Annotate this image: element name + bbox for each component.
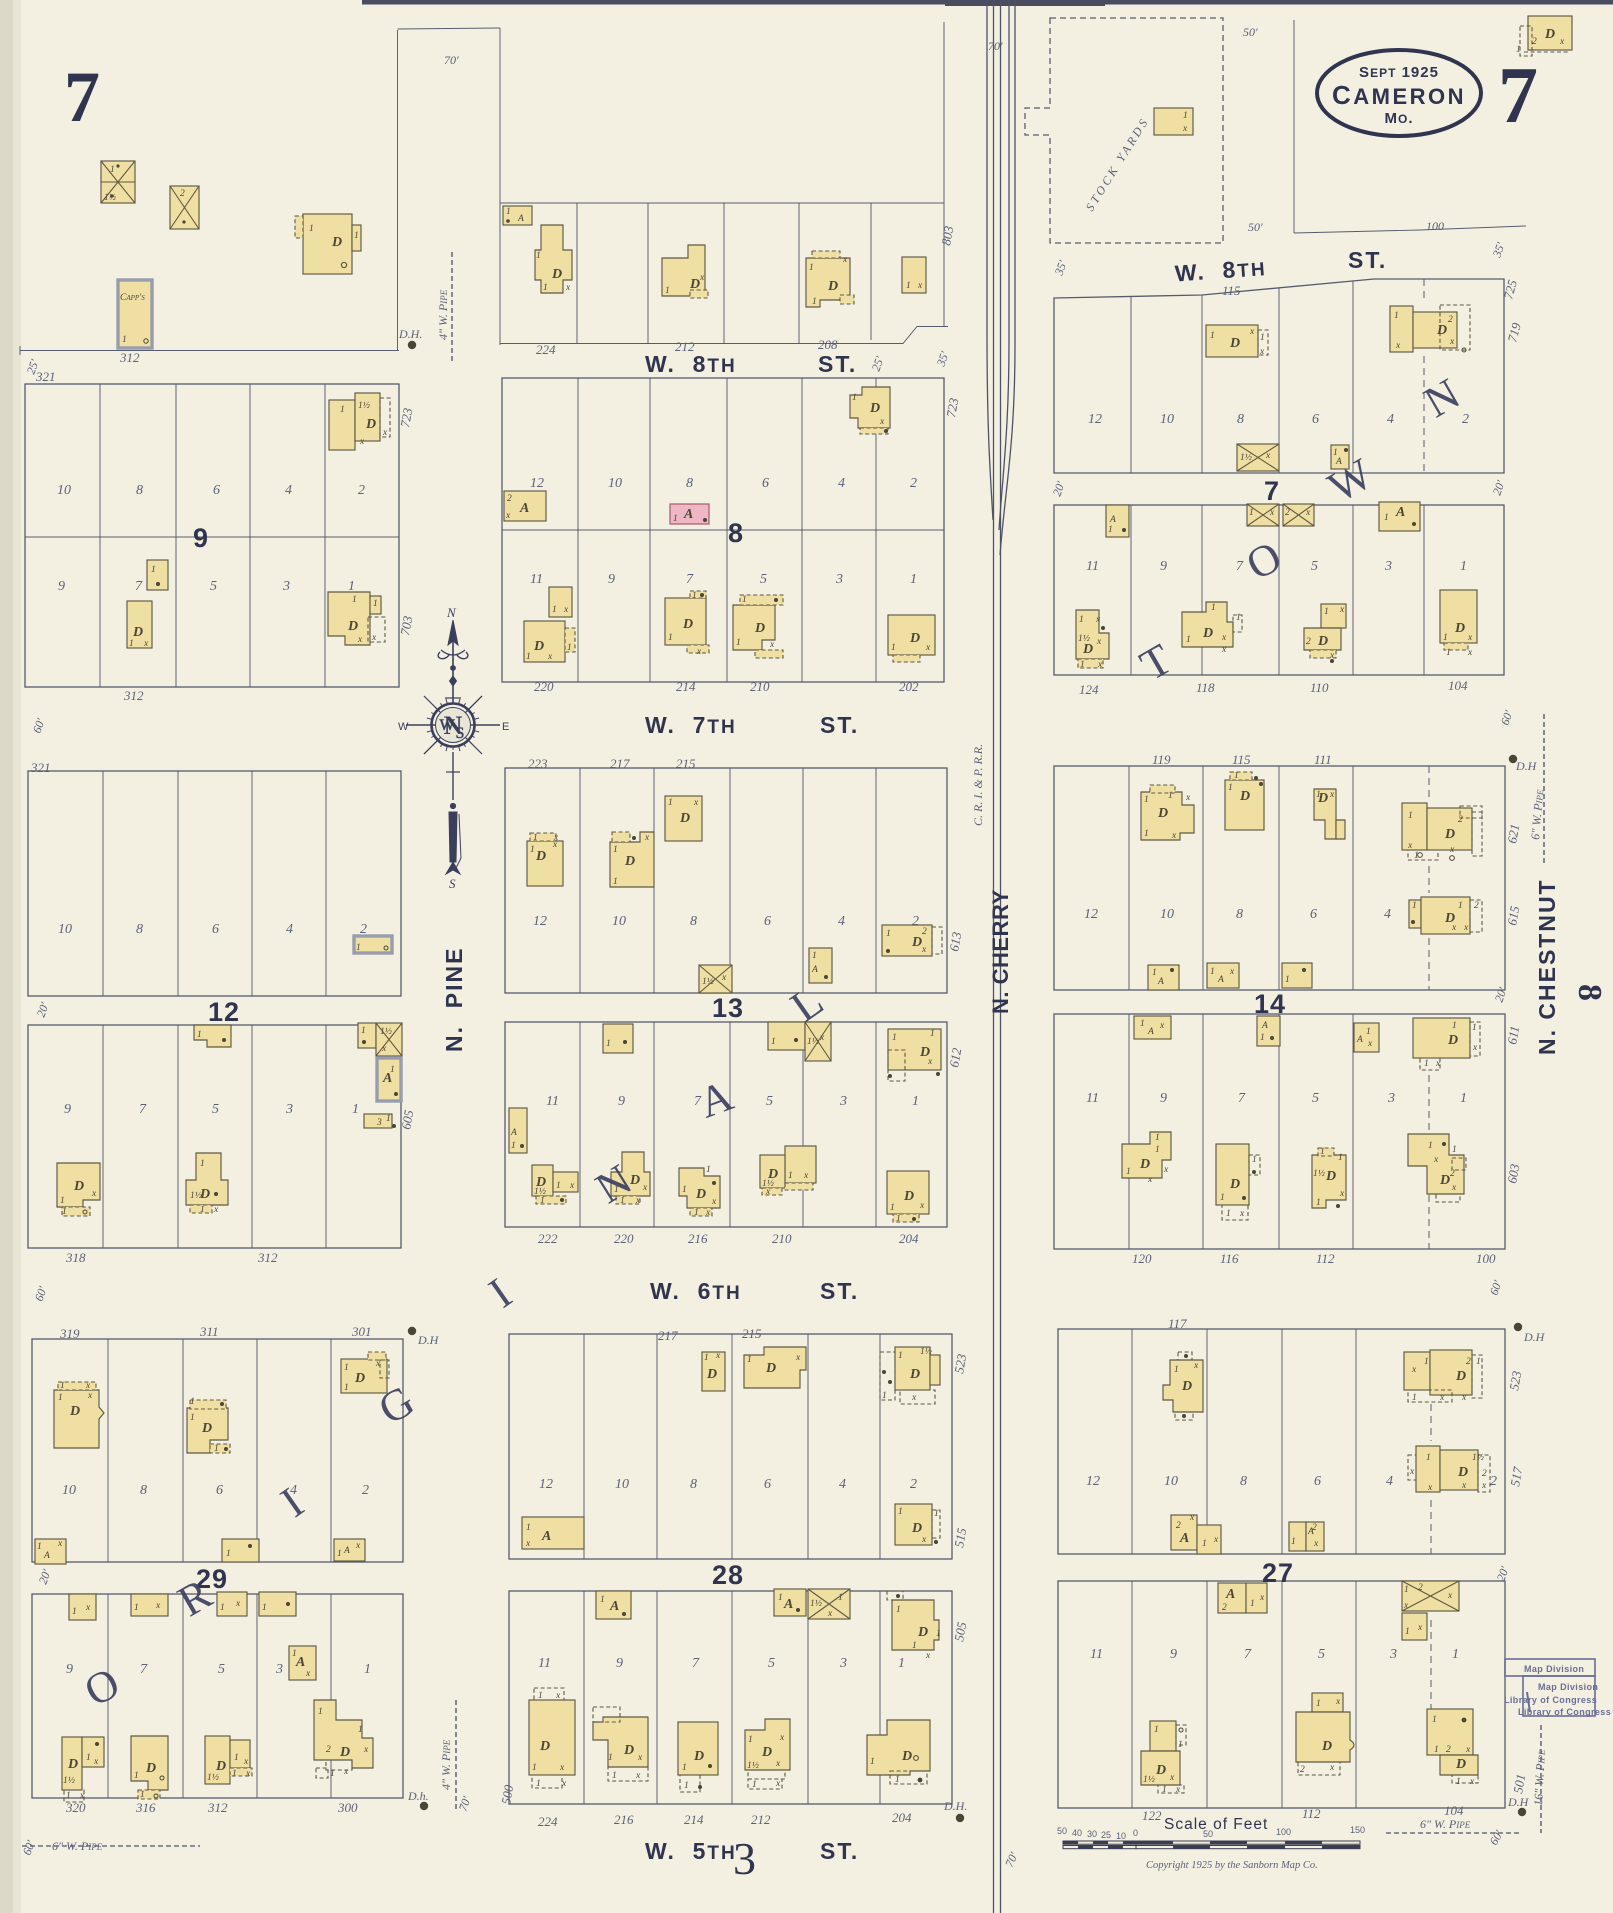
svg-text:1: 1 [60, 1196, 65, 1206]
svg-text:220: 220 [534, 679, 554, 694]
svg-text:D: D [539, 1739, 550, 1754]
svg-text:1: 1 [898, 1507, 903, 1517]
svg-text:A: A [1395, 505, 1405, 520]
svg-text:D: D [706, 1367, 717, 1382]
svg-text:13: 13 [712, 993, 744, 1023]
svg-text:7: 7 [139, 1102, 147, 1117]
svg-text:1: 1 [891, 643, 896, 653]
svg-text:1: 1 [1452, 1145, 1457, 1155]
svg-text:D: D [917, 1625, 928, 1640]
svg-text:D.H: D.H [417, 1333, 440, 1347]
svg-text:1: 1 [344, 1383, 349, 1393]
svg-text:70': 70' [444, 53, 459, 67]
svg-text:x: x [1159, 1021, 1165, 1031]
svg-text:A: A [1147, 1027, 1154, 1037]
svg-text:1: 1 [1316, 1198, 1321, 1208]
svg-text:1: 1 [72, 1607, 77, 1617]
svg-text:x: x [155, 1601, 161, 1611]
svg-text:224: 224 [536, 342, 556, 357]
svg-text:1: 1 [934, 1509, 939, 1519]
svg-text:x: x [715, 1351, 721, 1361]
svg-text:1: 1 [668, 633, 673, 643]
svg-text:D.H: D.H [1507, 1795, 1530, 1809]
svg-text:1: 1 [129, 639, 134, 649]
svg-text:ST.: ST. [820, 1838, 859, 1864]
svg-text:1: 1 [1384, 513, 1389, 523]
svg-text:8: 8 [136, 922, 143, 937]
svg-text:x: x [1411, 1365, 1417, 1375]
svg-text:1: 1 [771, 1037, 776, 1047]
svg-text:D: D [911, 935, 922, 950]
svg-text:0: 0 [1133, 1828, 1138, 1838]
svg-text:7: 7 [1498, 52, 1538, 140]
svg-text:1: 1 [1366, 1027, 1371, 1037]
svg-text:D: D [73, 1179, 84, 1194]
svg-text:118: 118 [1196, 680, 1215, 695]
svg-text:x: x [927, 1057, 933, 1067]
svg-text:9: 9 [66, 1662, 73, 1677]
svg-text:217: 217 [610, 756, 630, 771]
svg-text:D: D [909, 631, 920, 646]
svg-text:x: x [85, 1603, 91, 1613]
svg-text:D: D [693, 1749, 704, 1764]
svg-text:1: 1 [665, 286, 670, 296]
svg-text:1: 1 [1220, 1193, 1225, 1203]
svg-text:1: 1 [134, 1603, 139, 1613]
svg-text:A: A [609, 1599, 619, 1614]
svg-text:1: 1 [704, 1353, 709, 1363]
svg-text:1: 1 [352, 595, 357, 605]
svg-text:1: 1 [1394, 311, 1399, 321]
svg-text:A: A [1179, 1531, 1189, 1546]
svg-text:6" W. PIPE: 6" W. PIPE [52, 1839, 103, 1853]
svg-text:D: D [551, 267, 562, 282]
svg-text:x: x [1409, 1467, 1415, 1477]
svg-text:115: 115 [1222, 283, 1241, 298]
svg-text:50': 50' [1243, 25, 1258, 39]
svg-text:2: 2 [1312, 1523, 1317, 1533]
svg-text:x: x [779, 1733, 785, 1743]
svg-text:1½: 1½ [358, 400, 370, 411]
svg-text:x: x [87, 1391, 93, 1401]
svg-text:x: x [1189, 1513, 1195, 1523]
svg-text:2: 2 [1306, 637, 1311, 647]
svg-text:12: 12 [208, 997, 240, 1027]
svg-text:1: 1 [37, 1542, 42, 1552]
svg-text:N. CHESTNUT: N. CHESTNUT [1534, 878, 1560, 1055]
svg-text:1½: 1½ [104, 192, 116, 203]
svg-text:1: 1 [330, 1769, 335, 1779]
svg-text:6: 6 [213, 483, 220, 498]
svg-text:3: 3 [376, 1118, 382, 1128]
svg-text:1½: 1½ [810, 1598, 822, 1609]
svg-text:5: 5 [768, 1656, 775, 1671]
svg-text:6: 6 [216, 1483, 223, 1498]
svg-text:1: 1 [812, 951, 817, 961]
svg-text:1: 1 [262, 1603, 267, 1613]
svg-text:8: 8 [728, 518, 744, 548]
svg-text:3: 3 [1384, 559, 1392, 574]
svg-text:3: 3 [1387, 1091, 1395, 1106]
svg-text:2: 2 [507, 494, 512, 504]
svg-text:x: x [93, 1757, 99, 1767]
svg-text:10: 10 [1160, 412, 1174, 427]
svg-text:A: A [43, 1551, 50, 1561]
svg-text:212: 212 [751, 1812, 771, 1827]
svg-text:1: 1 [66, 1791, 71, 1801]
svg-text:x: x [555, 1691, 561, 1701]
svg-text:11: 11 [1086, 1091, 1099, 1106]
svg-text:1½: 1½ [1472, 1452, 1484, 1463]
svg-text:10: 10 [1164, 1474, 1178, 1489]
svg-text:N: N [446, 605, 457, 620]
svg-text:215: 215 [676, 756, 696, 771]
svg-text:x: x [1447, 1591, 1453, 1601]
svg-text:1: 1 [533, 833, 538, 843]
svg-text:2: 2 [910, 1477, 917, 1492]
svg-text:100: 100 [1276, 1827, 1291, 1837]
svg-text:3: 3 [733, 1833, 756, 1884]
svg-text:2: 2 [1222, 1603, 1227, 1613]
svg-text:x: x [382, 428, 388, 438]
svg-text:1: 1 [340, 405, 345, 415]
svg-text:x: x [371, 633, 377, 643]
svg-text:217: 217 [658, 1328, 678, 1343]
svg-text:1: 1 [390, 1065, 395, 1075]
svg-text:111: 111 [1314, 752, 1332, 767]
svg-text:10: 10 [62, 1483, 76, 1498]
svg-text:x: x [1463, 923, 1469, 933]
svg-text:D: D [365, 417, 376, 432]
svg-text:12: 12 [1088, 412, 1102, 427]
svg-text:x: x [921, 1535, 927, 1545]
svg-text:x: x [765, 1187, 771, 1197]
svg-text:4: 4 [839, 1477, 846, 1492]
svg-text:14: 14 [1254, 989, 1286, 1019]
svg-text:x: x [143, 639, 149, 649]
svg-text:7: 7 [140, 1662, 148, 1677]
svg-text:7: 7 [1264, 476, 1280, 506]
svg-text:D: D [347, 619, 358, 634]
svg-text:70': 70' [988, 39, 1003, 53]
svg-text:x: x [375, 1359, 381, 1369]
svg-text:120: 120 [1132, 1251, 1152, 1266]
svg-text:1½: 1½ [807, 1036, 819, 1047]
svg-text:10: 10 [608, 476, 622, 491]
svg-text:11: 11 [1090, 1647, 1103, 1662]
svg-text:1½: 1½ [1143, 1774, 1155, 1785]
svg-text:3: 3 [282, 579, 290, 594]
svg-text:Map Division: Map Division [1538, 1682, 1598, 1692]
svg-text:x: x [827, 1609, 833, 1619]
svg-text:x: x [1461, 1393, 1467, 1403]
svg-text:119: 119 [1152, 752, 1171, 767]
svg-text:1: 1 [1405, 1627, 1410, 1637]
svg-text:x: x [1403, 1601, 1409, 1611]
svg-text:1: 1 [613, 845, 618, 855]
svg-text:x: x [1481, 1481, 1487, 1491]
svg-text:301: 301 [351, 1324, 372, 1339]
svg-text:D.h.: D.h. [407, 1789, 429, 1803]
svg-text:x: x [1461, 1481, 1467, 1491]
svg-text:1: 1 [352, 1102, 359, 1117]
svg-text:ST.: ST. [818, 351, 857, 377]
svg-text:x: x [1449, 845, 1455, 855]
svg-text:D: D [1202, 626, 1213, 641]
svg-text:ST.: ST. [1348, 247, 1387, 273]
svg-text:x: x [1169, 1773, 1175, 1783]
svg-text:28: 28 [712, 1560, 744, 1590]
svg-text:3: 3 [1389, 1647, 1397, 1662]
svg-text:x: x [1467, 633, 1473, 643]
svg-text:1: 1 [200, 1205, 205, 1215]
svg-text:1: 1 [1178, 1740, 1183, 1750]
svg-text:1: 1 [540, 1196, 545, 1206]
svg-text:1: 1 [344, 1363, 349, 1373]
svg-text:D: D [1317, 634, 1328, 649]
svg-text:1: 1 [62, 1207, 67, 1217]
svg-text:D: D [1181, 1379, 1192, 1394]
svg-text:1: 1 [906, 281, 911, 291]
svg-text:1: 1 [1452, 1021, 1457, 1031]
svg-text:3: 3 [839, 1656, 847, 1671]
svg-text:D: D [911, 1521, 922, 1536]
svg-text:1: 1 [220, 1603, 225, 1613]
svg-text:x: x [1395, 341, 1401, 351]
svg-text:1: 1 [1210, 331, 1215, 341]
svg-text:1: 1 [122, 335, 127, 345]
svg-text:D: D [331, 235, 342, 250]
svg-text:D: D [1454, 621, 1465, 636]
svg-text:SEPT 1925: SEPT 1925 [1359, 64, 1439, 81]
svg-text:12: 12 [533, 914, 547, 929]
svg-text:D: D [761, 1745, 772, 1760]
svg-text:210: 210 [750, 679, 770, 694]
svg-text:12: 12 [1086, 1474, 1100, 1489]
svg-text:x: x [642, 1183, 648, 1193]
svg-text:2: 2 [1482, 1469, 1487, 1479]
svg-text:A: A [783, 1597, 793, 1612]
svg-text:1: 1 [682, 1763, 687, 1773]
svg-text:2: 2 [1458, 815, 1463, 825]
svg-text:D: D [869, 401, 880, 416]
svg-text:1: 1 [1249, 508, 1254, 518]
svg-text:312: 312 [119, 350, 140, 365]
svg-text:x: x [1259, 1593, 1265, 1603]
svg-text:A: A [683, 507, 693, 522]
svg-text:1: 1 [1324, 607, 1329, 617]
svg-text:CAMERON: CAMERON [1332, 80, 1466, 110]
svg-text:1: 1 [608, 1753, 613, 1763]
svg-text:150: 150 [1350, 1825, 1365, 1835]
svg-text:W: W [439, 717, 455, 734]
svg-text:8: 8 [140, 1483, 147, 1498]
svg-text:S: S [456, 725, 465, 742]
svg-text:x: x [921, 945, 927, 955]
svg-text:x: x [803, 1171, 809, 1181]
svg-text:D: D [1325, 1169, 1336, 1184]
svg-text:100: 100 [1426, 219, 1444, 233]
svg-text:2: 2 [1418, 1583, 1423, 1593]
svg-text:2: 2 [1300, 1765, 1305, 1775]
svg-text:1: 1 [567, 643, 572, 653]
svg-text:1: 1 [882, 1391, 887, 1401]
svg-text:2: 2 [1285, 508, 1290, 518]
svg-text:D: D [624, 854, 635, 869]
svg-text:1: 1 [1210, 967, 1215, 977]
svg-text:1½: 1½ [747, 1760, 759, 1771]
svg-text:1: 1 [898, 1656, 905, 1671]
svg-text:1: 1 [778, 1593, 783, 1603]
svg-text:4" W. PIPE: 4" W. PIPE [439, 1739, 453, 1790]
svg-text:D: D [69, 1404, 80, 1419]
svg-text:A: A [517, 214, 524, 224]
svg-text:ST.: ST. [820, 712, 859, 738]
svg-text:1½: 1½ [1078, 633, 1090, 644]
svg-text:x: x [795, 1353, 801, 1363]
svg-text:D: D [67, 1757, 78, 1772]
svg-text:112: 112 [1302, 1806, 1321, 1821]
svg-text:1: 1 [1226, 1209, 1231, 1219]
svg-text:50: 50 [1203, 1829, 1213, 1839]
svg-text:D: D [1229, 1177, 1240, 1192]
svg-text:9: 9 [1170, 1647, 1177, 1662]
svg-text:x: x [925, 1651, 931, 1661]
svg-text:1: 1 [511, 1141, 516, 1151]
svg-text:x: x [91, 1189, 97, 1199]
svg-text:x: x [547, 652, 553, 662]
svg-text:115: 115 [1232, 752, 1251, 767]
svg-text:Scale of Feet: Scale of Feet [1164, 1816, 1268, 1833]
svg-text:W: W [398, 721, 409, 733]
svg-text:1: 1 [1202, 1539, 1207, 1549]
svg-text:D: D [1455, 1369, 1466, 1384]
svg-text:1: 1 [1338, 1153, 1343, 1163]
svg-text:x: x [1239, 1209, 1245, 1219]
svg-text:4: 4 [1384, 907, 1391, 922]
svg-text:x: x [699, 273, 705, 283]
svg-text:N. CHERRY: N. CHERRY [988, 889, 1013, 1014]
svg-text:x: x [1221, 645, 1227, 655]
svg-text:2: 2 [326, 1745, 331, 1755]
svg-text:x: x [1329, 1763, 1335, 1773]
svg-text:8: 8 [1237, 412, 1244, 427]
svg-text:x: x [769, 640, 775, 650]
svg-text:316: 316 [135, 1800, 156, 1815]
svg-text:1: 1 [1162, 1785, 1167, 1795]
svg-text:1: 1 [898, 1351, 903, 1361]
svg-text:x: x [235, 1599, 241, 1609]
svg-text:318: 318 [65, 1250, 86, 1265]
svg-text:x: x [1339, 1189, 1345, 1199]
svg-text:x: x [565, 283, 571, 293]
svg-text:1: 1 [788, 1171, 793, 1181]
svg-text:x: x [1096, 637, 1102, 647]
svg-text:1: 1 [364, 1662, 371, 1677]
svg-text:1: 1 [337, 1549, 342, 1559]
svg-text:9: 9 [608, 572, 615, 587]
svg-text:204: 204 [899, 1231, 919, 1246]
svg-text:1: 1 [870, 1757, 875, 1767]
svg-text:x: x [775, 1759, 781, 1769]
svg-text:1: 1 [1412, 901, 1417, 911]
svg-text:1½: 1½ [702, 976, 714, 987]
svg-text:1: 1 [532, 1763, 537, 1773]
svg-text:1: 1 [1458, 901, 1463, 911]
svg-text:1: 1 [747, 1355, 752, 1365]
svg-text:1: 1 [613, 877, 618, 887]
svg-text:x: x [1171, 831, 1177, 841]
svg-text:x: x [1367, 1039, 1373, 1049]
svg-text:1: 1 [682, 1185, 687, 1195]
svg-text:1: 1 [1460, 1091, 1467, 1106]
svg-text:2: 2 [1490, 1474, 1497, 1489]
svg-text:1: 1 [673, 514, 678, 524]
svg-text:1: 1 [1236, 613, 1241, 623]
svg-text:1: 1 [1211, 603, 1216, 613]
svg-text:8: 8 [136, 483, 143, 498]
svg-text:1: 1 [373, 599, 378, 609]
svg-text:A: A [1356, 1035, 1363, 1045]
svg-text:7: 7 [686, 572, 694, 587]
svg-text:D: D [201, 1421, 212, 1436]
svg-text:1: 1 [1424, 1357, 1429, 1367]
svg-text:8: 8 [690, 1477, 697, 1492]
svg-text:1: 1 [936, 1629, 941, 1639]
svg-text:1: 1 [526, 652, 531, 662]
svg-text:117: 117 [1168, 1316, 1187, 1331]
svg-text:9: 9 [1160, 559, 1167, 574]
svg-text:1: 1 [1154, 1725, 1159, 1735]
svg-text:50: 50 [1057, 1826, 1067, 1836]
svg-text:Copyright 1925 by the Sanborn: Copyright 1925 by the Sanborn Map Co. [1146, 1860, 1318, 1871]
svg-text:6: 6 [764, 1477, 771, 1492]
svg-text:D: D [1139, 1157, 1150, 1172]
svg-text:x: x [775, 1779, 781, 1789]
svg-text:D: D [827, 279, 838, 294]
svg-text:x: x [1305, 508, 1311, 518]
svg-text:9: 9 [64, 1102, 71, 1117]
svg-text:1: 1 [812, 297, 817, 307]
svg-text:7: 7 [692, 1656, 700, 1671]
svg-text:D: D [689, 277, 700, 292]
svg-text:1½: 1½ [380, 1026, 392, 1037]
svg-text:1: 1 [742, 595, 747, 605]
svg-text:x: x [1335, 1697, 1341, 1707]
svg-text:1½: 1½ [207, 1772, 219, 1783]
svg-text:222: 222 [538, 1231, 558, 1246]
svg-text:x: x [1229, 967, 1235, 977]
svg-text:1: 1 [506, 207, 511, 217]
svg-text:4: 4 [285, 483, 292, 498]
svg-text:1: 1 [612, 1771, 617, 1781]
svg-text:4: 4 [286, 922, 293, 937]
svg-text:10: 10 [1160, 907, 1174, 922]
svg-text:223: 223 [528, 756, 548, 771]
svg-text:5: 5 [1312, 1091, 1319, 1106]
svg-text:1: 1 [838, 1593, 843, 1603]
svg-text:1: 1 [1404, 1585, 1409, 1595]
svg-text:Library of Congress: Library of Congress [1504, 1695, 1597, 1705]
svg-text:1: 1 [1140, 1019, 1145, 1029]
svg-text:611: 611 [1504, 1025, 1522, 1046]
svg-text:x: x [1339, 605, 1345, 615]
svg-text:D: D [765, 1361, 776, 1376]
svg-text:D: D [1439, 1173, 1450, 1188]
svg-text:1: 1 [684, 1781, 689, 1791]
svg-text:1½: 1½ [63, 1775, 75, 1786]
svg-text:1: 1 [151, 565, 156, 575]
